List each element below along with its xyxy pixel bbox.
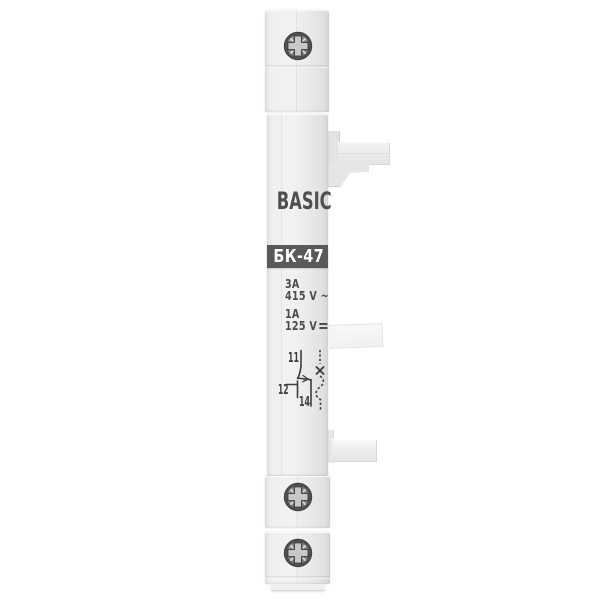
mold-seam bbox=[281, 114, 283, 476]
mold-seam bbox=[265, 65, 329, 68]
bottom-terminal-block-upper bbox=[265, 476, 330, 528]
dc-voltage-label: 125 V bbox=[285, 321, 329, 333]
screw-head-icon bbox=[283, 538, 313, 568]
module-body: BASIC БК-47 3A 415 V ~ 1A 125 V bbox=[267, 114, 328, 476]
terminal-14-label: 14 bbox=[299, 395, 310, 410]
product-photo: BASIC БК-47 3A 415 V ~ 1A 125 V bbox=[0, 0, 600, 600]
actuator-tab-lower bbox=[332, 439, 377, 462]
ac-voltage-label: 415 V ~ bbox=[285, 291, 329, 303]
actuator-tab-middle bbox=[329, 323, 384, 349]
din-clip-hook bbox=[328, 164, 369, 187]
terminal-11-label: 11 bbox=[288, 351, 299, 366]
bottom-terminal-block-lower bbox=[265, 532, 330, 584]
dc-symbol-icon bbox=[319, 323, 327, 330]
bottom-base-strip bbox=[271, 584, 325, 591]
model-label: БК-47 bbox=[273, 245, 324, 268]
screw-head-icon bbox=[283, 31, 313, 61]
brand-label: BASIC bbox=[277, 187, 318, 215]
model-badge: БК-47 bbox=[267, 245, 328, 268]
screw-head-icon bbox=[283, 482, 313, 512]
ratings-block: 3A 415 V ~ 1A 125 V bbox=[285, 279, 329, 332]
terminal-12-label: 12 bbox=[278, 383, 289, 398]
din-clip-lever bbox=[338, 142, 390, 165]
mold-seam bbox=[265, 576, 330, 579]
top-terminal-block bbox=[265, 10, 329, 112]
mold-seam bbox=[296, 10, 298, 112]
contact-circuit-diagram: 11 12 14 bbox=[278, 348, 333, 413]
